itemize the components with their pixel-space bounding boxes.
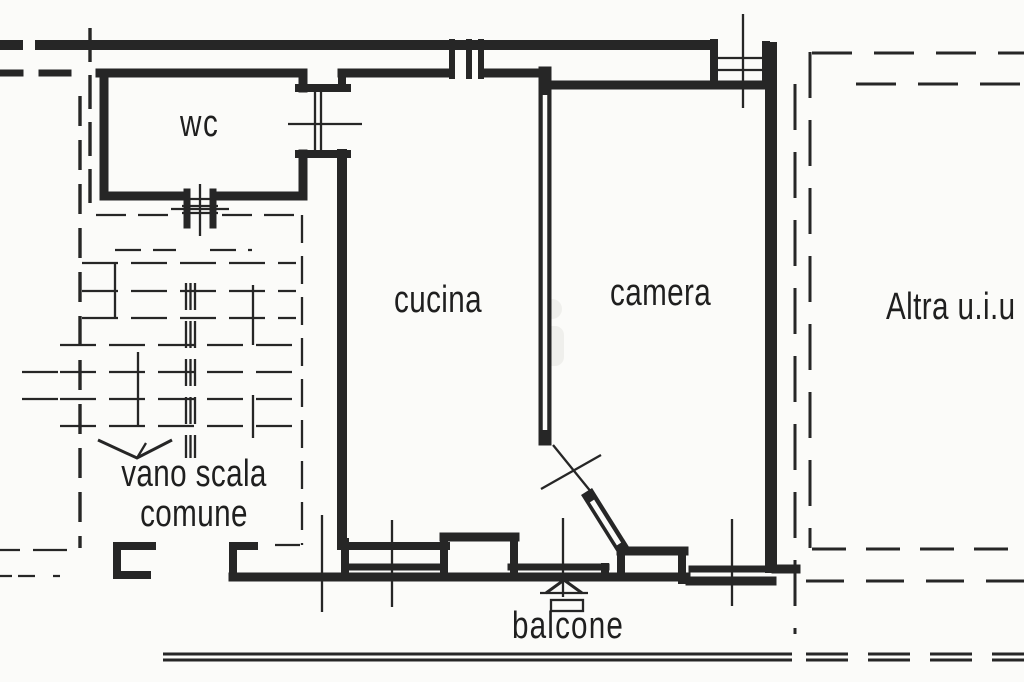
bottom-wall	[233, 537, 772, 581]
room-label-wc: wc	[180, 105, 219, 145]
stair-treads-lower	[60, 345, 296, 426]
stair-exit-bracket-left	[117, 546, 152, 575]
boundary-dash-stair-left-stub	[22, 372, 58, 399]
top-right-window-glazing	[714, 58, 766, 70]
stair-stringer-lines	[186, 283, 195, 458]
railing-dashed	[806, 654, 1024, 660]
top-right-window-posts	[714, 43, 766, 84]
vano-scala-line1: vano scala	[118, 455, 271, 495]
bottom-wall-outer	[233, 577, 772, 581]
stair-exit-bracket-right	[233, 546, 254, 577]
stair-rails	[115, 263, 253, 438]
room-label-cucina: cucina	[394, 281, 482, 321]
label-altra-unita: Altra u.i.u	[886, 288, 1016, 328]
vano-scala-line2: comune	[118, 495, 271, 535]
balcony-railing	[163, 654, 1024, 660]
wc-door	[288, 92, 362, 151]
floor-plan-drawing	[0, 0, 1024, 682]
interior-door	[541, 445, 622, 548]
wc-door-leaf	[315, 92, 321, 151]
room-label-camera: camera	[610, 274, 711, 314]
shaft-top-bar	[299, 73, 347, 88]
door-leaf-core	[592, 501, 619, 544]
railing-solid	[163, 654, 792, 660]
room-label-vano-scala: vano scala comune	[118, 455, 271, 535]
window-bump-sides	[444, 537, 514, 570]
room-label-balcone: balcone	[512, 607, 624, 647]
floor-plan: wc cucina camera vano scala comune balco…	[0, 0, 1024, 682]
